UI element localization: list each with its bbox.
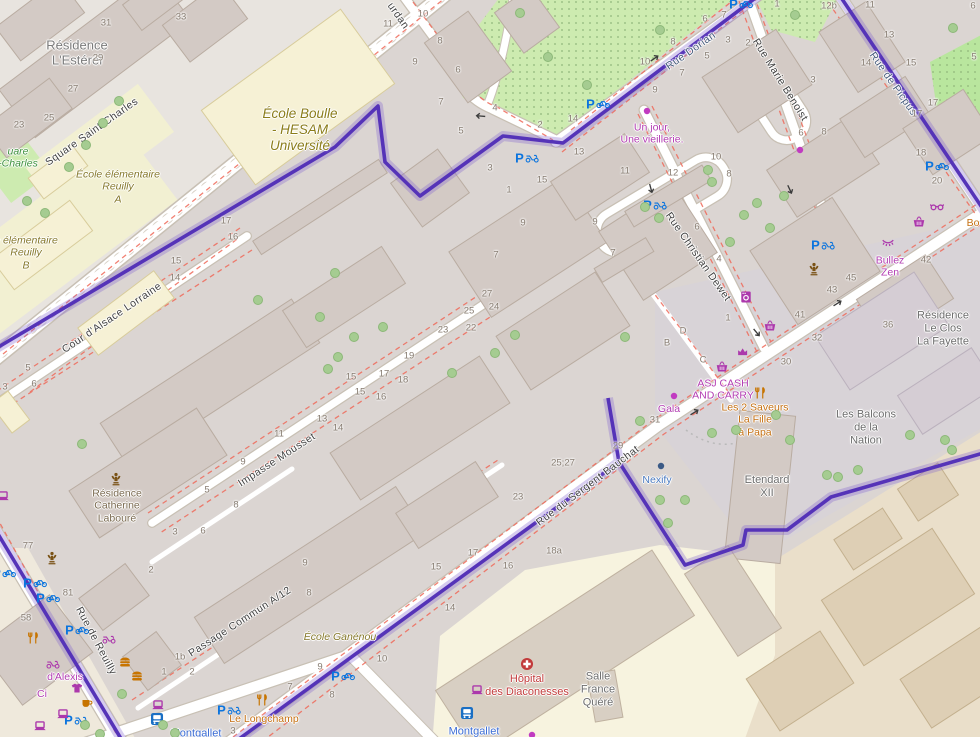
- housenumber: 4: [716, 254, 721, 265]
- shop-ci-fragment: Ci: [37, 688, 47, 700]
- tree-icon: [680, 495, 690, 505]
- parking-moto-icon: P: [515, 152, 539, 165]
- tree-icon: [654, 213, 664, 223]
- housenumber: 9: [302, 558, 307, 569]
- housenumber: 12b: [821, 1, 837, 12]
- housenumber: 11: [383, 19, 393, 30]
- memorial-statue-icon: [110, 472, 122, 486]
- housenumber: 13: [317, 414, 328, 425]
- housenumber: 25: [44, 113, 55, 124]
- memorial-statue-icon: [46, 551, 58, 565]
- tree-icon: [947, 445, 957, 455]
- computer-shop-icon: [152, 700, 165, 711]
- street-passage-commun: Passage Commun A/12: [186, 584, 293, 660]
- scooter-shop-icon: [46, 660, 60, 669]
- housenumber: 2: [537, 120, 542, 131]
- park-square-charles-fragment: uare-Charles: [0, 146, 38, 171]
- poi-dot-magenta-icon: [670, 392, 678, 400]
- tree-icon: [707, 428, 717, 438]
- housenumber: 45: [846, 273, 857, 284]
- housenumber: B: [664, 338, 670, 349]
- shop-d-alexis: d'Alexis: [47, 671, 83, 683]
- tree-icon: [635, 416, 645, 426]
- street-rue-du-sergent-bauchat: Rue du Sergent Bauchat: [534, 443, 642, 529]
- housenumber: 24: [489, 302, 500, 313]
- housenumber: 1b: [175, 652, 186, 663]
- housenumber: 15: [171, 256, 182, 267]
- housenumber: 33: [176, 12, 187, 23]
- housenumber: 23: [14, 120, 25, 131]
- shop-asj-cash-and-carry: ASJ CASHAND CARRY: [692, 378, 754, 403]
- housenumber: 31: [101, 18, 112, 29]
- parking-bike-icon: P: [729, 0, 753, 11]
- tree-icon: [785, 435, 795, 445]
- housenumber: 11: [865, 0, 875, 11]
- tree-icon: [765, 223, 775, 233]
- housenumber: 7: [679, 68, 684, 79]
- housenumber: 36: [883, 320, 894, 331]
- housenumber: 8: [437, 36, 442, 47]
- tree-icon: [117, 689, 127, 699]
- supermarket-basket-icon: [913, 216, 925, 228]
- tree-icon: [81, 140, 91, 150]
- housenumber: 14: [333, 423, 344, 434]
- tree-icon: [80, 720, 90, 730]
- tree-icon: [853, 465, 863, 475]
- residence-le-clos-la-fayette: RésidenceLe ClosLa Fayette: [917, 310, 969, 349]
- housenumber: 19: [404, 351, 415, 362]
- housenumber: 15: [346, 372, 357, 383]
- map-annotation-layer: RésidenceL'EstérelSquare Saint-Charlesua…: [0, 0, 980, 737]
- tree-icon: [253, 295, 263, 305]
- housenumber: 29: [613, 441, 624, 452]
- housenumber: 10: [377, 654, 388, 665]
- housenumber: 7: [610, 248, 615, 259]
- tree-icon: [333, 352, 343, 362]
- housenumber: 2: [189, 667, 194, 678]
- housenumber: 6: [970, 1, 975, 12]
- housenumber: 3: [172, 527, 177, 538]
- housenumber: 9: [240, 457, 245, 468]
- housenumber: 3: [725, 35, 730, 46]
- housenumber: 8: [726, 169, 731, 180]
- ecole-boulle: École Boulle- HESAMUniversité: [262, 106, 337, 154]
- housenumber: 15: [355, 387, 366, 398]
- housenumber: 18: [398, 375, 409, 386]
- shop-gala: Gala: [658, 403, 680, 415]
- housenumber: 7: [493, 250, 498, 261]
- hopital-des-diaconesses: Hôpitaldes Diaconesses: [485, 673, 569, 699]
- metro-montgallet-2: Montgallet: [449, 726, 500, 737]
- housenumber: 29: [93, 53, 104, 64]
- housenumber: 14: [170, 273, 181, 284]
- housenumber: 17: [221, 216, 232, 227]
- tree-icon: [948, 23, 958, 33]
- tree-icon: [378, 322, 388, 332]
- parking-bike-icon: P: [36, 592, 60, 605]
- housenumber: 32: [812, 333, 823, 344]
- scooter-shop-icon: [102, 635, 116, 644]
- housenumber: 41: [795, 310, 806, 321]
- memorial-statue-icon: [808, 262, 820, 276]
- housenumber: 27: [68, 84, 79, 95]
- housenumber: 17: [468, 548, 479, 559]
- bus-stop-icon: [461, 707, 474, 720]
- housenumber: 11: [620, 166, 630, 177]
- housenumber: 8: [306, 588, 311, 599]
- ecole-elementaire-reuilly-b: e élémentaireReuillyB: [0, 234, 58, 271]
- housenumber: 42: [921, 255, 932, 266]
- poi-dot-magenta-icon: [643, 107, 651, 115]
- tree-icon: [725, 237, 735, 247]
- supermarket-basket-icon: [764, 320, 776, 332]
- housenumber: 1: [725, 313, 730, 324]
- tree-icon: [22, 196, 32, 206]
- tree-icon: [447, 368, 457, 378]
- housenumber: 17: [912, 109, 923, 120]
- housenumber: 22: [466, 323, 477, 334]
- housenumber: 3: [487, 163, 492, 174]
- housenumber: 27: [482, 289, 493, 300]
- tree-icon: [77, 439, 87, 449]
- housenumber: 1: [506, 185, 511, 196]
- glasses-shop-icon: [930, 203, 944, 211]
- street-cour-alsace-lorraine: Cour d'Alsace Lorraine: [60, 280, 164, 356]
- tree-icon: [703, 165, 713, 175]
- housenumber: 81: [63, 588, 74, 599]
- housenumber: 9: [652, 85, 657, 96]
- housenumber: 11: [274, 429, 284, 440]
- tree-icon: [655, 495, 665, 505]
- housenumber: 6: [200, 526, 205, 537]
- housenumber: C: [700, 355, 707, 366]
- oneway-arrow-icon: [688, 406, 702, 419]
- housenumber: 16: [503, 561, 514, 572]
- tree-icon: [833, 472, 843, 482]
- housenumber: 8: [329, 690, 334, 701]
- hospital-cross-icon: [521, 658, 534, 671]
- housenumber: 3: [230, 726, 235, 737]
- housenumber: 6: [798, 128, 803, 139]
- tree-icon: [515, 8, 525, 18]
- computer-shop-icon: [34, 721, 47, 732]
- tree-icon: [582, 80, 592, 90]
- restaurant-cutlery-icon: [755, 387, 766, 400]
- housenumber: 6: [694, 222, 699, 233]
- street-square-saint-charles: Square Saint-Charles: [43, 95, 141, 168]
- tree-icon: [323, 364, 333, 374]
- tree-icon: [64, 162, 74, 172]
- clothes-shop-icon: [71, 683, 83, 694]
- housenumber: 15: [537, 175, 548, 186]
- housenumber: 16: [228, 232, 239, 243]
- tree-icon: [752, 198, 762, 208]
- housenumber: 18a: [546, 546, 562, 557]
- tree-icon: [707, 177, 717, 187]
- tree-icon: [315, 312, 325, 322]
- tree-icon: [170, 728, 180, 737]
- tree-icon: [731, 425, 741, 435]
- housenumber: 23: [513, 492, 524, 503]
- oneway-arrow-icon: [648, 51, 662, 64]
- oneway-arrow-icon: [646, 182, 656, 196]
- tree-icon: [510, 330, 520, 340]
- housenumber: 5: [204, 485, 209, 496]
- housenumber: 6: [702, 14, 707, 25]
- housenumber: 20: [932, 176, 943, 187]
- housenumber: 8: [670, 37, 675, 48]
- tree-icon: [158, 720, 168, 730]
- computer-shop-icon: [0, 491, 10, 502]
- bakery-icon: [737, 346, 749, 356]
- poi-dot-magenta-icon: [796, 146, 804, 154]
- tree-icon: [95, 729, 105, 737]
- beauty-eyelash-icon: [882, 239, 895, 248]
- les-balcons-de-la-nation: Les Balconsde laNation: [836, 409, 896, 448]
- housenumber: 7: [287, 682, 292, 693]
- housenumber: 12: [668, 168, 679, 179]
- housenumber: 6: [455, 65, 460, 76]
- housenumber: 5: [704, 51, 709, 62]
- housenumber: 16: [376, 392, 387, 403]
- housenumber: 9: [412, 57, 417, 68]
- fastfood-burger-icon: [131, 671, 143, 682]
- poi-dot-navy-icon: [657, 462, 665, 470]
- parking-bike-icon: P: [925, 160, 949, 173]
- housenumber: 2: [148, 565, 153, 576]
- computer-shop-icon: [471, 685, 484, 696]
- parking-bike-icon: P: [331, 670, 355, 683]
- tree-icon: [640, 202, 650, 212]
- tree-icon: [790, 10, 800, 20]
- shop-bullez-zen: BullezZen: [876, 255, 905, 280]
- fastfood-burger-icon: [119, 657, 131, 668]
- tree-icon: [663, 518, 673, 528]
- housenumber: 3: [2, 382, 7, 393]
- salle-france-quere: SalleFranceQuéré: [581, 671, 615, 710]
- housenumber: 30: [781, 357, 792, 368]
- housenumber: 15: [906, 58, 917, 69]
- ecole-ganenou: École Ganénou: [304, 631, 376, 643]
- tree-icon: [655, 25, 665, 35]
- housenumber: 13: [884, 30, 895, 41]
- supermarket-basket-icon: [716, 361, 728, 373]
- tree-icon: [114, 96, 124, 106]
- food-bo-fragment: Bo: [967, 217, 980, 229]
- computer-shop-icon: [57, 709, 70, 720]
- tree-icon: [739, 210, 749, 220]
- tree-icon: [330, 268, 340, 278]
- etendard-xii: EtendardXII: [745, 474, 790, 500]
- parking-bike-icon: P: [586, 98, 610, 111]
- shop-un-jour-une-vieillerie: Un jour,Une vieillerie.: [620, 122, 683, 147]
- housenumber: 9: [592, 217, 597, 228]
- housenumber: 18: [916, 148, 927, 159]
- restaurant-cutlery-icon: [257, 694, 268, 707]
- housenumber: 2: [745, 38, 750, 49]
- ecole-elementaire-reuilly-a: École élémentaireReuillyA: [76, 168, 160, 205]
- housenumber: 5: [971, 52, 976, 63]
- tree-icon: [543, 52, 553, 62]
- tree-icon: [40, 208, 50, 218]
- housenumber: 9: [317, 662, 322, 673]
- tree-icon: [779, 191, 789, 201]
- residence-catherine-laboure: RésidenceCatherineLabouré: [92, 487, 142, 524]
- housenumber: 43: [827, 285, 838, 296]
- map-canvas[interactable]: RésidenceL'EstérelSquare Saint-Charlesua…: [0, 0, 980, 737]
- parking-moto-icon: P: [217, 704, 241, 717]
- tree-icon: [822, 470, 832, 480]
- housenumber: 10: [418, 9, 429, 20]
- tree-icon: [771, 410, 781, 420]
- housenumber: 58: [21, 613, 32, 624]
- housenumber: 25;27: [551, 458, 575, 469]
- tree-icon: [940, 435, 950, 445]
- housenumber: 10: [711, 152, 722, 163]
- tree-icon: [490, 348, 500, 358]
- tree-icon: [620, 332, 630, 342]
- housenumber: D: [680, 326, 687, 337]
- housenumber: 5: [458, 126, 463, 137]
- parking-bike-icon: P: [0, 567, 16, 580]
- oneway-arrow-icon: [750, 326, 763, 340]
- housenumber: 17: [928, 98, 939, 109]
- housenumber: 8: [821, 127, 826, 138]
- housenumber: 14: [568, 114, 579, 125]
- housenumber: 1: [161, 667, 166, 678]
- housenumber: 9: [520, 218, 525, 229]
- housenumber: 14: [445, 603, 456, 614]
- office-nexify: Nexify: [642, 474, 671, 486]
- housenumber: 7: [721, 10, 726, 21]
- housenumber: 23: [438, 325, 449, 336]
- housenumber: 14: [861, 58, 872, 69]
- housenumber: 3: [810, 75, 815, 86]
- housenumber: 8: [233, 500, 238, 511]
- parking-bike-icon: P: [65, 624, 89, 637]
- housenumber: 1: [774, 0, 779, 10]
- oneway-arrow-icon: [474, 112, 487, 121]
- oneway-arrow-icon: [831, 297, 845, 310]
- parking-bike-icon: P: [23, 577, 47, 590]
- cafe-icon: [81, 698, 93, 709]
- housenumber: 7: [438, 97, 443, 108]
- housenumber: 17: [379, 369, 390, 380]
- parking-moto-icon: P: [811, 239, 835, 252]
- restaurant-cutlery-icon: [28, 632, 39, 645]
- housenumber: 25: [464, 306, 475, 317]
- housenumber: 6: [31, 379, 36, 390]
- housenumber: 13: [574, 147, 585, 158]
- poi-dot-magenta-icon: [528, 731, 536, 737]
- tree-icon: [349, 332, 359, 342]
- housenumber: 31: [650, 415, 661, 426]
- housenumber: 5: [25, 363, 30, 374]
- tree-icon: [98, 118, 108, 128]
- laundry-icon: [741, 291, 752, 304]
- housenumber: 4: [492, 103, 497, 114]
- housenumber: 15: [431, 562, 442, 573]
- housenumber: 77: [23, 541, 34, 552]
- street-rue-marie-benoist: Rue Marie Benoist: [750, 36, 811, 123]
- tree-icon: [905, 430, 915, 440]
